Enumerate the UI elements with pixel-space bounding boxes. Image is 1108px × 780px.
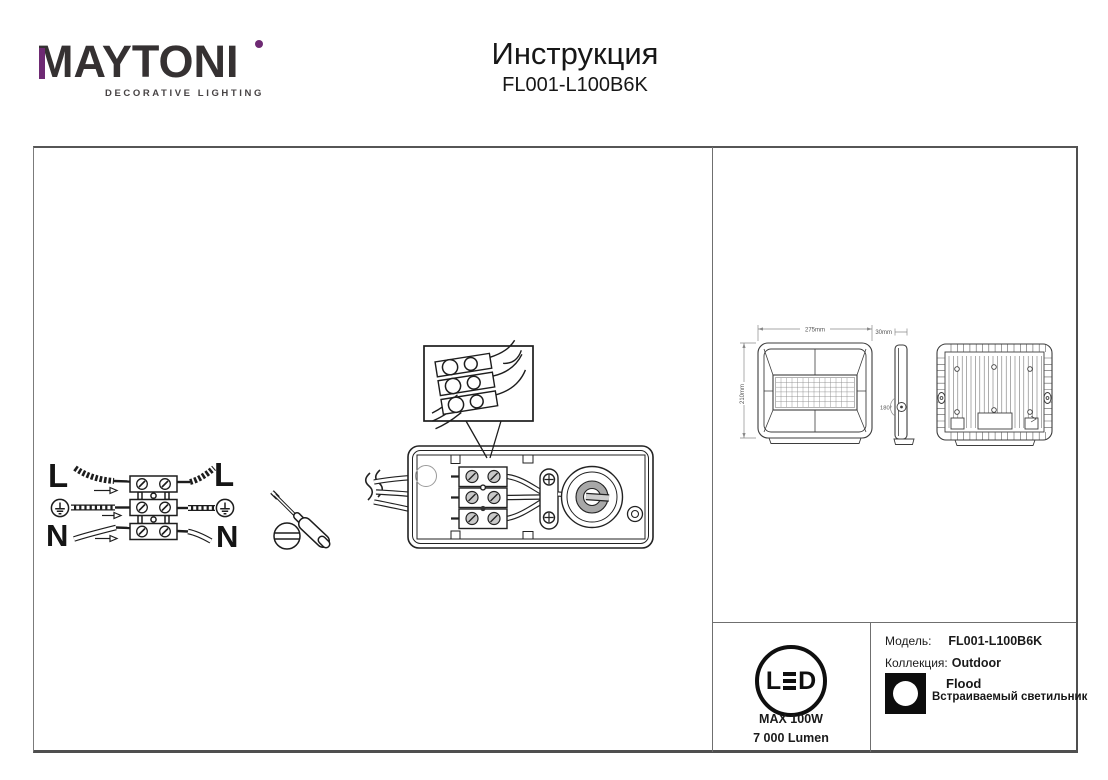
brand-name: MAYTONI xyxy=(36,36,266,88)
inset-pointer xyxy=(466,421,501,458)
luminous-flux-label: 7 000 Lumen xyxy=(712,731,870,745)
cable-gland xyxy=(562,467,623,528)
collection-row: Коллекция: Outdoor xyxy=(885,656,1001,670)
dim-depth-label: 30mm xyxy=(875,330,892,336)
earth-icon-right xyxy=(216,499,233,516)
dim-width-label: 275mm xyxy=(805,328,825,334)
collection-value: Outdoor xyxy=(952,656,1001,670)
neutral-label-left: N xyxy=(46,518,68,553)
logo-i-dot xyxy=(255,40,263,48)
cable-clamp xyxy=(540,469,558,529)
page-title: Инструкция xyxy=(400,36,750,72)
back-view-drawing xyxy=(937,344,1052,446)
earth-icon-left xyxy=(51,499,68,516)
flood-icon xyxy=(885,673,926,714)
terminal-detail-inset xyxy=(423,344,537,462)
front-dimensions: 275mm 210mm xyxy=(740,325,872,438)
neutral-label-right: N xyxy=(216,519,238,554)
title-block: Инструкция FL001-L100B6K xyxy=(400,36,750,97)
side-view-drawing: 30mm 180° xyxy=(875,329,914,445)
brand-tagline: DECORATIVE LIGHTING xyxy=(36,88,266,99)
led-badge: L D xyxy=(755,645,827,717)
line-label-right: L xyxy=(214,456,234,493)
page-model: FL001-L100B6K xyxy=(400,74,750,97)
max-power-label: MAX 100W xyxy=(712,712,870,726)
spec-divider xyxy=(712,622,1076,623)
maytoni-logo: MAYTONI DECORATIVE LIGHTING xyxy=(36,36,266,99)
led-letter-l: L xyxy=(766,667,781,696)
wiring-diagram: L N L N xyxy=(38,448,244,576)
collection-label: Коллекция: xyxy=(885,656,948,670)
column-divider xyxy=(712,147,713,752)
line-label-left: L xyxy=(48,457,68,494)
model-value: FL001-L100B6K xyxy=(948,634,1042,648)
led-e-bars xyxy=(783,672,796,690)
model-label: Модель: xyxy=(885,634,931,648)
product-description: Встраиваемый светильник xyxy=(932,691,1087,703)
logo-m-accent xyxy=(39,48,45,79)
led-letter-d: D xyxy=(798,667,816,696)
front-view-drawing xyxy=(758,343,872,444)
screw-head xyxy=(274,523,300,549)
spec-cell-divider xyxy=(870,622,871,752)
beam-angle-label: 180° xyxy=(880,406,892,412)
instruction-sheet-page: MAYTONI DECORATIVE LIGHTING Инструкция F… xyxy=(0,0,1108,780)
dimension-drawings: 275mm 210mm 30mm 180° xyxy=(715,312,1077,452)
product-type: Flood xyxy=(946,676,981,691)
screwdriver-icon xyxy=(262,483,362,568)
dim-height-label: 210mm xyxy=(740,384,746,404)
model-row: Модель: FL001-L100B6K xyxy=(885,634,1042,648)
